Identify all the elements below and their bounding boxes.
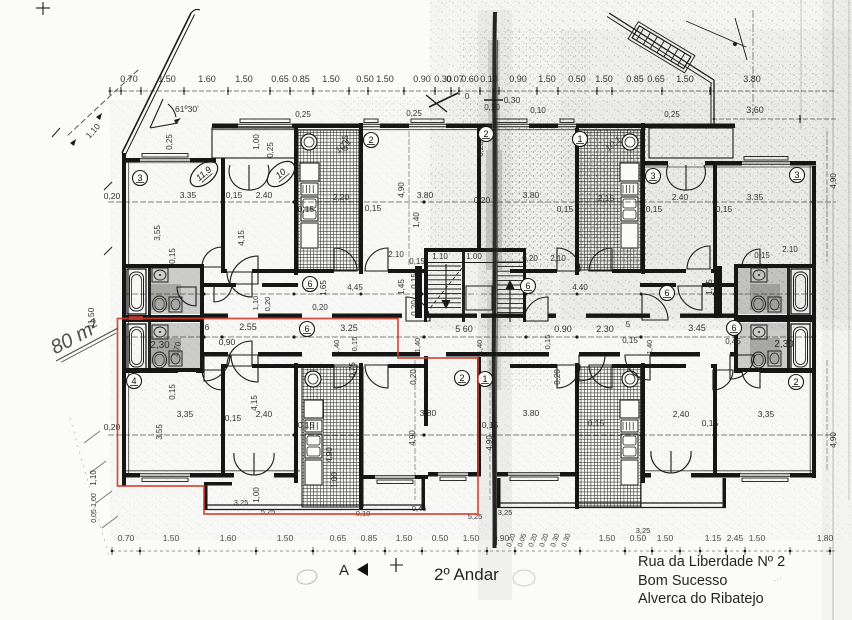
- svg-text:1.50: 1.50: [322, 74, 340, 84]
- svg-text:3,25: 3,25: [234, 498, 249, 507]
- svg-text:0,75: 0,75: [348, 362, 357, 378]
- svg-text:3.80: 3.80: [743, 74, 761, 84]
- svg-text:0,20: 0,20: [410, 300, 419, 316]
- svg-text:0.70: 0.70: [120, 74, 138, 84]
- svg-text:0,15: 0,15: [226, 190, 243, 200]
- svg-text:0,90: 0,90: [219, 337, 236, 347]
- svg-text:1.50: 1.50: [749, 533, 766, 543]
- svg-text:1,45: 1,45: [705, 279, 714, 295]
- svg-text:1.50: 1.50: [463, 533, 480, 543]
- svg-text:Bom Sucesso: Bom Sucesso: [638, 573, 727, 589]
- svg-text:2,30: 2,30: [774, 339, 794, 350]
- svg-text:2.30: 2.30: [596, 324, 614, 334]
- svg-text:2,20: 2,20: [333, 192, 350, 202]
- svg-text:0,10: 0,10: [484, 103, 500, 112]
- svg-text:0,30: 0,30: [504, 95, 521, 105]
- svg-text:0.50: 0.50: [432, 533, 449, 543]
- svg-text:0,20: 0,20: [476, 141, 485, 157]
- svg-text:0,15: 0,15: [365, 203, 382, 213]
- svg-text:0.85: 0.85: [626, 74, 644, 84]
- svg-text:0.90: 0.90: [554, 324, 572, 334]
- svg-text:2: 2: [459, 373, 464, 383]
- svg-text:4,90: 4,90: [325, 447, 334, 463]
- svg-text:3.80: 3.80: [417, 190, 434, 200]
- svg-text:1.50: 1.50: [676, 74, 694, 84]
- svg-text:0,15: 0,15: [716, 204, 733, 214]
- svg-text:2.10: 2.10: [388, 250, 404, 259]
- svg-text:1,40: 1,40: [475, 340, 484, 355]
- svg-text:1,45: 1,45: [397, 279, 406, 295]
- svg-text:0,15: 0,15: [588, 418, 605, 428]
- svg-text:0,20: 0,20: [522, 254, 538, 263]
- svg-text:1,00: 1,00: [252, 487, 261, 503]
- svg-text:1.50: 1.50: [163, 533, 180, 543]
- svg-text:2,15: 2,15: [598, 193, 615, 203]
- svg-text:3.80: 3.80: [523, 190, 540, 200]
- svg-text:5: 5: [626, 320, 631, 329]
- svg-text:2º Andar: 2º Andar: [434, 565, 499, 584]
- svg-text:1,10: 1,10: [251, 296, 260, 311]
- svg-text:4,15: 4,15: [237, 230, 246, 246]
- svg-text:0,20: 0,20: [263, 297, 272, 312]
- svg-text:1.50: 1.50: [376, 74, 394, 84]
- svg-text:3.60: 3.60: [746, 105, 764, 115]
- svg-text:4,90: 4,90: [408, 430, 417, 446]
- svg-text:6: 6: [205, 322, 210, 332]
- svg-text:3.80: 3.80: [523, 408, 540, 418]
- svg-text:0,15: 0,15: [557, 204, 574, 214]
- svg-text:1.50: 1.50: [235, 74, 253, 84]
- svg-text:4: 4: [131, 376, 136, 386]
- svg-text:0,20: 0,20: [312, 303, 328, 312]
- svg-text:Rua da Liberdade Nº 2: Rua da Liberdade Nº 2: [638, 554, 785, 570]
- svg-text:3.35: 3.35: [747, 192, 764, 202]
- svg-text:6: 6: [307, 279, 312, 289]
- svg-text:5 60: 5 60: [455, 324, 473, 334]
- svg-text:0,25: 0,25: [266, 142, 275, 158]
- svg-text:0,15: 0,15: [482, 420, 499, 430]
- svg-text:0.50: 0.50: [356, 74, 374, 84]
- svg-text:0,20: 0,20: [409, 369, 418, 385]
- svg-text:0.60: 0.60: [461, 74, 479, 84]
- svg-text:2: 2: [483, 129, 488, 139]
- svg-text:1.50: 1.50: [396, 533, 413, 543]
- svg-text:0.85: 0.85: [361, 533, 378, 543]
- svg-text:0,15: 0,15: [298, 420, 315, 430]
- svg-text:3,55: 3,55: [155, 424, 164, 440]
- svg-text:1.50: 1.50: [657, 533, 674, 543]
- svg-text:1,40: 1,40: [332, 340, 341, 355]
- svg-text:0.90: 0.90: [509, 74, 527, 84]
- svg-text:1.50: 1.50: [595, 74, 613, 84]
- svg-text:1,40: 1,40: [645, 340, 654, 355]
- svg-text:3.45: 3.45: [688, 323, 706, 333]
- svg-text:2: 2: [793, 377, 798, 387]
- svg-text:6: 6: [731, 323, 736, 333]
- svg-text:4,90: 4,90: [485, 435, 494, 451]
- svg-text:1.10: 1.10: [432, 252, 448, 261]
- svg-text:2.10: 2.10: [782, 245, 798, 254]
- svg-text:0,25: 0,25: [295, 110, 311, 119]
- svg-text:0: 0: [465, 92, 470, 101]
- svg-text:0,45: 0,45: [725, 337, 741, 346]
- svg-text:1.15: 1.15: [705, 533, 722, 543]
- svg-text:0,15: 0,15: [410, 273, 419, 289]
- svg-text:0,25: 0,25: [664, 110, 680, 119]
- svg-text:3.25: 3.25: [340, 323, 358, 333]
- svg-text:1,40: 1,40: [413, 338, 422, 353]
- svg-text:2: 2: [368, 135, 373, 145]
- svg-text:0.65: 0.65: [647, 74, 665, 84]
- svg-text:0,05·1,00: 0,05·1,00: [91, 493, 98, 523]
- svg-text:0,15: 0,15: [350, 337, 359, 352]
- svg-text:0,15: 0,15: [646, 204, 663, 214]
- svg-text:11,50: 11,50: [86, 307, 96, 328]
- svg-text:0,25: 0,25: [406, 109, 422, 118]
- svg-text:0,20: 0,20: [104, 191, 121, 201]
- svg-text:0,15: 0,15: [409, 257, 425, 266]
- svg-text:0.65: 0.65: [271, 74, 289, 84]
- svg-text:1.00: 1.00: [466, 252, 482, 261]
- svg-text:1,65: 1,65: [319, 280, 328, 296]
- svg-text:0,45: 0,45: [412, 504, 427, 513]
- svg-text:1,40: 1,40: [412, 212, 421, 228]
- svg-text:1.50: 1.50: [599, 533, 616, 543]
- svg-text:2.55: 2.55: [239, 322, 257, 332]
- svg-text:1.60: 1.60: [220, 533, 237, 543]
- svg-text:2.45: 2.45: [727, 533, 744, 543]
- svg-text:1: 1: [577, 134, 582, 144]
- svg-text:0,15: 0,15: [543, 335, 552, 350]
- svg-text:2.40: 2.40: [256, 190, 273, 200]
- svg-text:3,35: 3,35: [177, 409, 194, 419]
- svg-text:1.60: 1.60: [198, 74, 216, 84]
- svg-text:0,15: 0,15: [225, 413, 242, 423]
- svg-text:0,15: 0,15: [754, 251, 770, 260]
- svg-text:1.80: 1.80: [817, 533, 834, 543]
- svg-text:1,00: 1,00: [252, 134, 261, 150]
- svg-text:2,30: 2,30: [150, 340, 170, 351]
- svg-text:3,55: 3,55: [153, 225, 162, 241]
- svg-text:0,15: 0,15: [702, 418, 719, 428]
- svg-text:4,45: 4,45: [347, 283, 363, 292]
- svg-text:1.50: 1.50: [538, 74, 556, 84]
- svg-text:1,10: 1,10: [89, 470, 98, 486]
- svg-text:0,15: 0,15: [168, 384, 177, 400]
- svg-text:2.40: 2.40: [672, 192, 689, 202]
- svg-text:4,15: 4,15: [250, 395, 259, 411]
- svg-text:1.50: 1.50: [277, 533, 294, 543]
- svg-text:4,90: 4,90: [829, 432, 838, 448]
- svg-text:4,90: 4,90: [397, 182, 406, 198]
- svg-text:Alverca do Ribatejo: Alverca do Ribatejo: [638, 591, 764, 607]
- svg-text:0,25: 0,25: [165, 134, 174, 150]
- svg-text:0,15: 0,15: [622, 336, 638, 345]
- svg-text:0,15: 0,15: [168, 248, 177, 264]
- svg-text:3,25: 3,25: [498, 508, 513, 517]
- svg-text:0.65: 0.65: [330, 533, 347, 543]
- svg-text:0.90: 0.90: [413, 74, 431, 84]
- svg-text:3: 3: [794, 170, 799, 180]
- svg-text:3.35: 3.35: [180, 190, 197, 200]
- svg-text:0.70: 0.70: [118, 533, 135, 543]
- svg-text:3,35: 3,35: [758, 409, 775, 419]
- svg-text:6: 6: [304, 324, 309, 334]
- svg-text:4,90: 4,90: [829, 173, 838, 189]
- svg-text:3.80: 3.80: [420, 408, 437, 418]
- svg-text:6: 6: [664, 288, 669, 298]
- svg-text:3: 3: [650, 171, 655, 181]
- svg-text:0.50: 0.50: [568, 74, 586, 84]
- svg-text:1,00: 1,00: [330, 472, 339, 488]
- svg-text:A: A: [339, 562, 349, 579]
- svg-text:6: 6: [525, 281, 530, 291]
- svg-text:0,20: 0,20: [553, 369, 562, 385]
- svg-text:4.40: 4.40: [572, 283, 588, 292]
- svg-text:0,10: 0,10: [530, 106, 546, 115]
- svg-text:0,20: 0,20: [474, 195, 491, 205]
- svg-text:2,40: 2,40: [673, 409, 690, 419]
- svg-text:2,10: 2,10: [550, 254, 566, 263]
- svg-text:0.85: 0.85: [292, 74, 310, 84]
- svg-text:61º30ʼ: 61º30ʼ: [175, 104, 199, 114]
- svg-text:3: 3: [137, 173, 142, 183]
- svg-text:0,15: 0,15: [298, 204, 315, 214]
- svg-text:0.50: 0.50: [630, 533, 647, 543]
- svg-text:1: 1: [482, 374, 487, 384]
